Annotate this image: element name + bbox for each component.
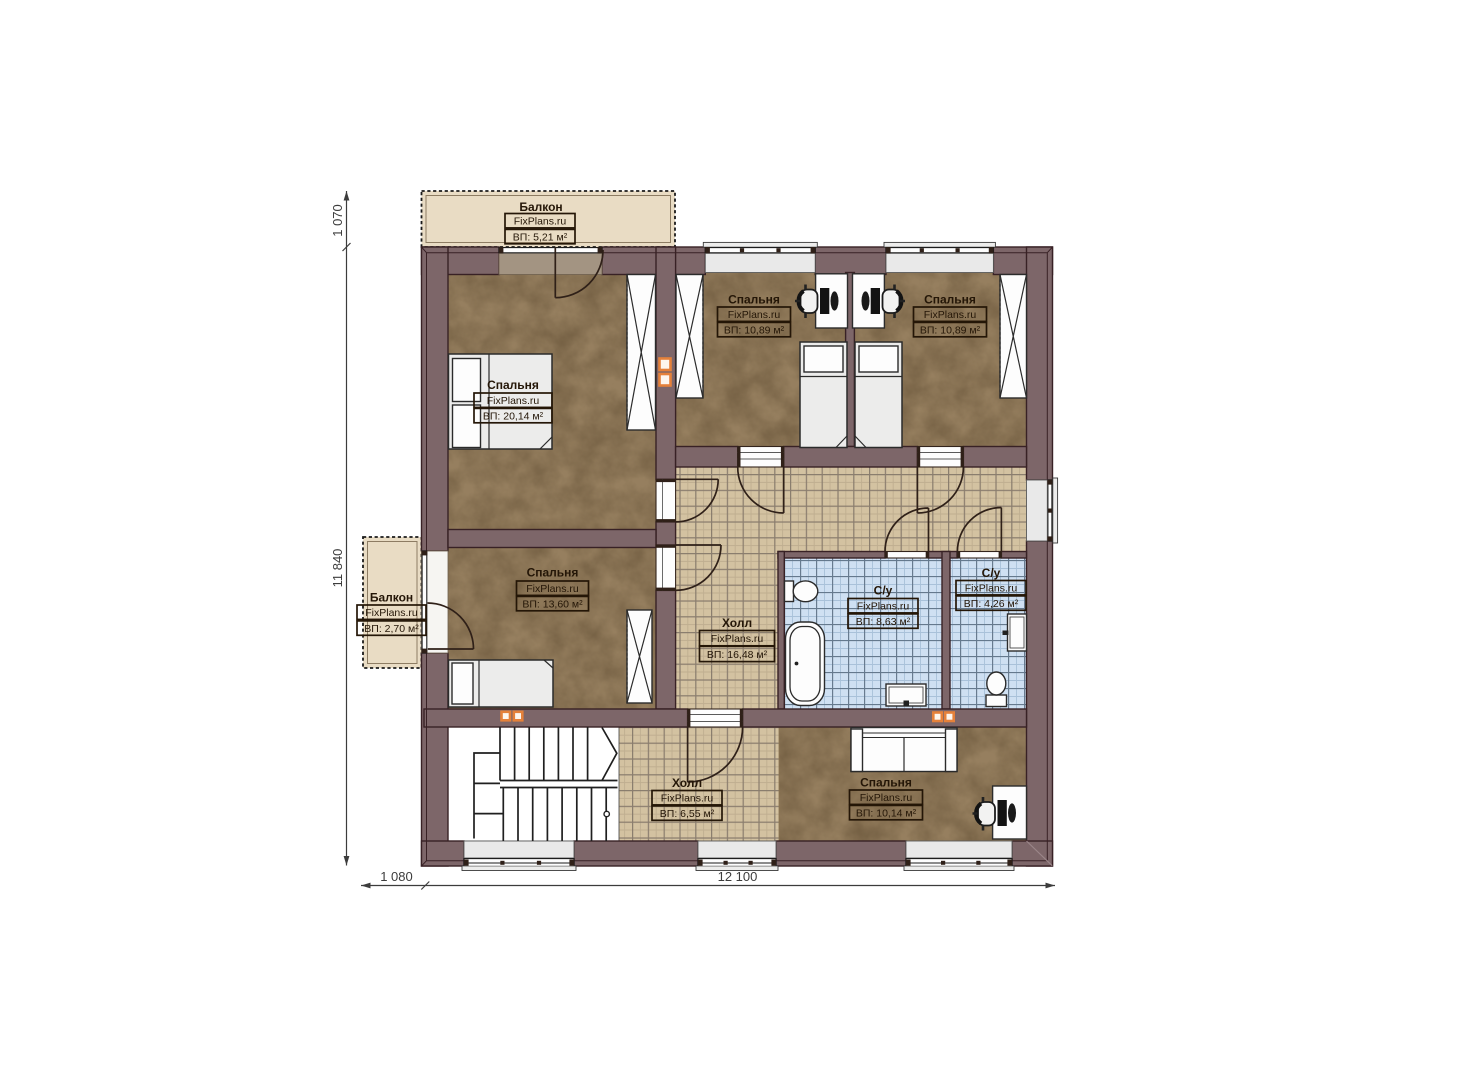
svg-text:ВП: 10,14 м²: ВП: 10,14 м²: [856, 807, 917, 819]
svg-text:12 100: 12 100: [718, 869, 758, 884]
svg-text:ВП: 5,21 м²: ВП: 5,21 м²: [513, 231, 568, 243]
svg-text:ВП: 16,48 м²: ВП: 16,48 м²: [707, 649, 768, 661]
svg-text:FixPlans.ru: FixPlans.ru: [728, 309, 781, 321]
svg-text:1 070: 1 070: [330, 204, 345, 237]
svg-text:ВП: 2,70 м²: ВП: 2,70 м²: [364, 623, 419, 635]
svg-text:ВП: 8,63 м²: ВП: 8,63 м²: [856, 616, 911, 628]
svg-text:1 080: 1 080: [380, 869, 413, 884]
svg-text:ВП: 20,14 м²: ВП: 20,14 м²: [483, 410, 544, 422]
svg-text:FixPlans.ru: FixPlans.ru: [514, 216, 567, 228]
svg-text:Спальня: Спальня: [860, 776, 912, 790]
svg-text:ВП: 4,26 м²: ВП: 4,26 м²: [964, 598, 1019, 610]
svg-text:FixPlans.ru: FixPlans.ru: [857, 601, 910, 613]
svg-text:11 840: 11 840: [330, 549, 345, 588]
svg-text:FixPlans.ru: FixPlans.ru: [365, 607, 418, 619]
svg-text:FixPlans.ru: FixPlans.ru: [487, 395, 540, 407]
svg-text:Спальня: Спальня: [728, 293, 780, 307]
svg-text:Спальня: Спальня: [924, 293, 976, 307]
svg-text:Спальня: Спальня: [487, 378, 539, 392]
svg-text:FixPlans.ru: FixPlans.ru: [661, 793, 714, 805]
svg-text:ВП: 6,55 м²: ВП: 6,55 м²: [660, 808, 715, 820]
svg-text:FixPlans.ru: FixPlans.ru: [924, 309, 977, 321]
svg-text:Балкон: Балкон: [519, 200, 562, 214]
svg-text:Балкон: Балкон: [370, 591, 413, 605]
svg-text:С/у: С/у: [874, 584, 893, 598]
svg-text:FixPlans.ru: FixPlans.ru: [860, 792, 913, 804]
svg-text:Спальня: Спальня: [527, 566, 579, 580]
svg-text:FixPlans.ru: FixPlans.ru: [526, 583, 579, 595]
svg-text:Холл: Холл: [672, 776, 702, 790]
svg-text:Холл: Холл: [722, 616, 752, 630]
svg-text:ВП: 10,89 м²: ВП: 10,89 м²: [920, 324, 981, 336]
svg-text:ВП: 13,60 м²: ВП: 13,60 м²: [522, 598, 583, 610]
svg-text:ВП: 10,89 м²: ВП: 10,89 м²: [724, 324, 785, 336]
svg-text:FixPlans.ru: FixPlans.ru: [965, 583, 1018, 595]
svg-text:С/у: С/у: [982, 566, 1001, 580]
svg-text:FixPlans.ru: FixPlans.ru: [711, 633, 764, 645]
